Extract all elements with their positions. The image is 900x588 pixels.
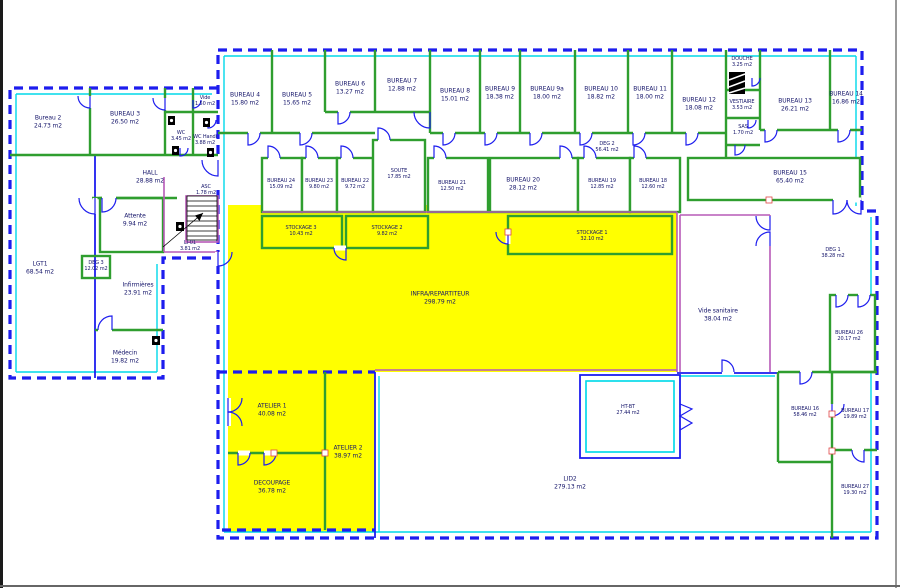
room-area: 9.80 m2 (305, 184, 333, 190)
room-name: INFRA/REPARTITEUR (411, 291, 470, 299)
room-label-bureau-26: BUREAU 2620.17 m2 (835, 330, 863, 343)
room-htbt-outline (580, 375, 692, 458)
room-label-attente: Attente9.94 m2 (123, 213, 147, 228)
shower-icon (729, 72, 745, 94)
room-area: 38.28 m2 (821, 253, 844, 259)
room-area: 3.25 m2 (731, 62, 752, 68)
room-label-bureau-19: BUREAU 1912.85 m2 (588, 178, 616, 191)
room-label-bureau-3: BUREAU 326.50 m2 (110, 111, 140, 126)
room-area: 68.54 m2 (26, 268, 54, 276)
room-area: 3.53 m2 (730, 105, 755, 111)
room-name: BUREAU 4 (230, 92, 260, 100)
room-label-bureau-16: BUREAU 1658.46 m2 (791, 406, 819, 419)
room-label-deg-3: DEG 312.02 m2 (84, 260, 107, 273)
room-name: Vide sanitaire (698, 308, 738, 316)
room-area: 12.50 m2 (438, 186, 466, 192)
room-label-bureau-6: BUREAU 613.27 m2 (335, 81, 365, 96)
room-area: 15.80 m2 (230, 99, 260, 107)
room-area: 10.43 m2 (286, 231, 317, 237)
room-label-bureau-17: BUREAU 1719.89 m2 (841, 408, 869, 421)
room-area: 18.82 m2 (584, 93, 618, 101)
room-name: ATELIER 2 (334, 445, 363, 453)
room-label-asc: ASC1.78 m2 (196, 184, 216, 197)
room-area: 27.44 m2 (616, 410, 639, 416)
room-name: BUREAU 8 (440, 88, 470, 96)
room-name: BUREAU 14 (829, 91, 863, 99)
room-area: 24.73 m2 (34, 122, 62, 130)
room-name: BUREAU 9 (485, 86, 515, 94)
room-area: 18.08 m2 (682, 104, 716, 112)
room-name: Bureau 2 (34, 115, 62, 123)
room-name: BUREAU 7 (387, 78, 417, 86)
room-label-vide: Vide1.50 m2 (195, 95, 215, 108)
window-edge-bottom (0, 585, 900, 587)
room-label-bureau-9: BUREAU 918.38 m2 (485, 86, 515, 101)
room-area: 17.85 m2 (387, 174, 410, 180)
room-area: 26.21 m2 (778, 105, 812, 113)
room-area: 15.09 m2 (267, 184, 295, 190)
room-label-vestiaire: VESTIAIRE3.53 m2 (730, 99, 755, 112)
room-label-li01: LI-013.81 m2 (180, 240, 200, 253)
room-area: 1.50 m2 (195, 101, 215, 107)
room-name: BUREAU 11 (633, 86, 667, 94)
room-label-lid2: LID2279.13 m2 (554, 476, 586, 491)
room-label-stockage-3: STOCKAGE 310.43 m2 (286, 225, 317, 238)
room-area: 15.01 m2 (440, 95, 470, 103)
room-area: 12.88 m2 (387, 85, 417, 93)
room-name: BUREAU 20 (506, 177, 540, 185)
room-label-wc-handi: WC Handi3.88 m2 (193, 134, 217, 147)
room-area: 9.94 m2 (123, 220, 147, 228)
room-label-bureau-13: BUREAU 1326.21 m2 (778, 98, 812, 113)
room-area: 26.50 m2 (110, 118, 140, 126)
room-label-soute: SOUTE17.85 m2 (387, 168, 410, 181)
room-label-bureau-27: BUREAU 2719.30 m2 (841, 484, 869, 497)
room-area: 58.46 m2 (791, 412, 819, 418)
room-area: 9.72 m2 (341, 184, 369, 190)
room-label-bureau-21: BUREAU 2112.50 m2 (438, 180, 466, 193)
room-label-bureau-23: BUREAU 239.80 m2 (305, 178, 333, 191)
room-area: 12.85 m2 (588, 184, 616, 190)
room-label-bureau-20: BUREAU 2028.12 m2 (506, 177, 540, 192)
room-label-bureau-8: BUREAU 815.01 m2 (440, 88, 470, 103)
room-label-douche: DOUCHE3.25 m2 (731, 56, 752, 69)
floorplan-page: Bureau 224.73 m2 BUREAU 326.50 m2 Vide1.… (0, 0, 900, 588)
room-area: 65.40 m2 (773, 177, 807, 185)
room-area: 19.82 m2 (111, 357, 139, 365)
room-area: 12.60 m2 (639, 184, 667, 190)
room-label-bureau-22: BUREAU 229.72 m2 (341, 178, 369, 191)
room-label-bureau-9a: BUREAU 9a18.00 m2 (530, 86, 563, 101)
room-area: 3.45 m2 (171, 136, 191, 142)
room-name: BUREAU 3 (110, 111, 140, 119)
room-name: DECOUPAGE (254, 480, 291, 488)
room-area: 279.13 m2 (554, 483, 586, 491)
room-label-atelier-1: ATELIER 140.08 m2 (258, 403, 287, 418)
room-name: BUREAU 5 (282, 92, 312, 100)
room-label-bureau-14: BUREAU 1416.86 m2 (829, 91, 863, 106)
room-area: 16.86 m2 (829, 98, 863, 106)
room-label-bureau-11: BUREAU 1118.00 m2 (633, 86, 667, 101)
room-area: 38.97 m2 (334, 452, 363, 460)
room-label-bureau-18: BUREAU 1812.60 m2 (639, 178, 667, 191)
room-name: Attente (123, 213, 147, 221)
room-area: 12.02 m2 (84, 266, 107, 272)
room-area: 18.00 m2 (633, 93, 667, 101)
room-name: BUREAU 12 (682, 97, 716, 105)
room-label-bureau-24: BUREAU 2415.09 m2 (267, 178, 295, 191)
room-area: 18.00 m2 (530, 93, 563, 101)
room-label-bureau-15: BUREAU 1565.40 m2 (773, 170, 807, 185)
room-name: LGT1 (26, 261, 54, 269)
room-label-wc: WC3.45 m2 (171, 130, 191, 143)
room-label-medecin: Médecin19.82 m2 (111, 350, 139, 365)
room-label-bureau-10: BUREAU 1018.82 m2 (584, 86, 618, 101)
room-label-deg-1: DEG 138.28 m2 (821, 247, 844, 260)
room-label-deg-2: DEG 256.41 m2 (595, 141, 618, 154)
room-label-ht-bt: HT-BT27.44 m2 (616, 404, 639, 417)
room-area: 40.08 m2 (258, 410, 287, 418)
room-label-hall: HALL28.88 m2 (136, 170, 164, 185)
room-area: 19.30 m2 (841, 490, 869, 496)
room-label-bureau-12: BUREAU 1218.08 m2 (682, 97, 716, 112)
room-area: 13.27 m2 (335, 88, 365, 96)
room-area: 298.79 m2 (411, 298, 470, 306)
room-area: 38.04 m2 (698, 315, 738, 323)
room-label-infra-repartiteur: INFRA/REPARTITEUR298.79 m2 (411, 291, 470, 306)
room-area: 9.82 m2 (372, 231, 403, 237)
room-area: 32.10 m2 (577, 236, 608, 242)
room-label-atelier-2: ATELIER 238.97 m2 (334, 445, 363, 460)
room-area: 23.91 m2 (123, 289, 154, 297)
room-area: 28.88 m2 (136, 177, 164, 185)
room-area: 20.17 m2 (835, 336, 863, 342)
room-name: BUREAU 15 (773, 170, 807, 178)
room-name: BUREAU 6 (335, 81, 365, 89)
room-label-stockage-1: STOCKAGE 132.10 m2 (577, 230, 608, 243)
room-name: BUREAU 9a (530, 86, 563, 94)
room-label-infirmieres: Infirmières23.91 m2 (123, 282, 154, 297)
room-area: 56.41 m2 (595, 147, 618, 153)
room-area: 19.89 m2 (841, 414, 869, 420)
window-edge-left (0, 0, 3, 588)
room-area: 3.88 m2 (193, 140, 217, 146)
room-label-decoupage: DECOUPAGE36.78 m2 (254, 480, 291, 495)
room-name: LID2 (554, 476, 586, 484)
room-label-vide-sanitaire: Vide sanitaire38.04 m2 (698, 308, 738, 323)
window-edge-right (895, 0, 897, 588)
room-name: HALL (136, 170, 164, 178)
room-area: 1.78 m2 (196, 190, 216, 196)
room-name: Infirmières (123, 282, 154, 290)
room-label-sas: SAS1.70 m2 (733, 124, 753, 137)
room-label-lgt1: LGT168.54 m2 (26, 261, 54, 276)
room-area: 15.65 m2 (282, 99, 312, 107)
room-name: BUREAU 13 (778, 98, 812, 106)
room-label-bureau-5: BUREAU 515.65 m2 (282, 92, 312, 107)
room-label-stockage-2: STOCKAGE 29.82 m2 (372, 225, 403, 238)
room-label-bureau-4: BUREAU 415.80 m2 (230, 92, 260, 107)
room-area: 3.81 m2 (180, 246, 200, 252)
room-name: ATELIER 1 (258, 403, 287, 411)
room-area: 36.78 m2 (254, 487, 291, 495)
room-name: Médecin (111, 350, 139, 358)
room-label-bureau-2: Bureau 224.73 m2 (34, 115, 62, 130)
room-area: 18.38 m2 (485, 93, 515, 101)
room-label-bureau-7: BUREAU 712.88 m2 (387, 78, 417, 93)
room-area: 1.70 m2 (733, 130, 753, 136)
room-area: 28.12 m2 (506, 184, 540, 192)
room-name: BUREAU 10 (584, 86, 618, 94)
